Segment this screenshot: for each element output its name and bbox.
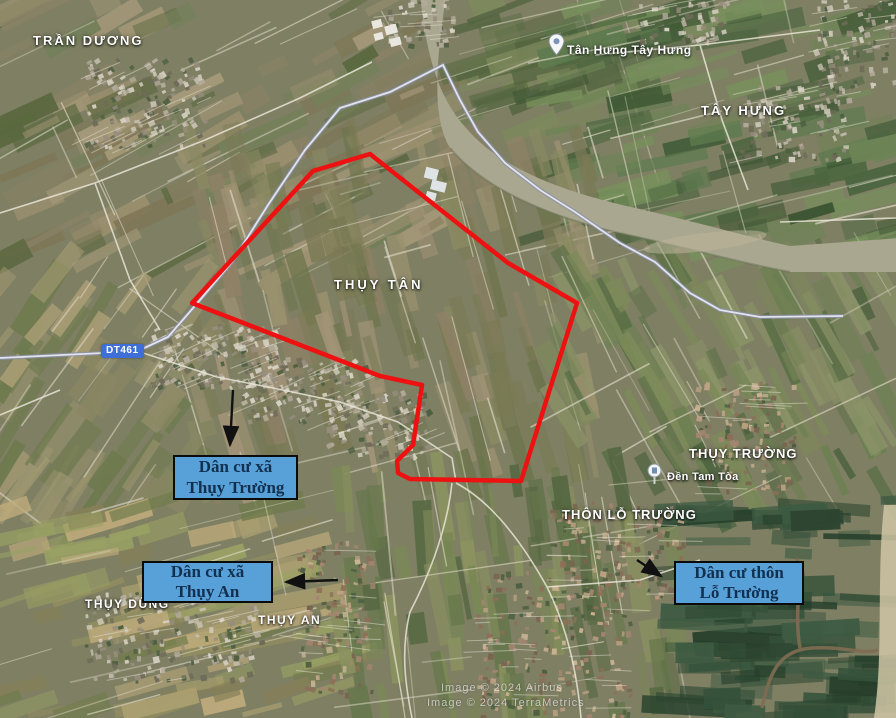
place-pin-icon[interactable] bbox=[548, 33, 565, 56]
map-label-tay-hung: TÂY HƯNG bbox=[701, 103, 786, 118]
road-badge-dt461: DT461 bbox=[101, 344, 144, 358]
map-label-thuy-truong: THỤY TRƯỜNG bbox=[689, 446, 797, 461]
map-label-thuy-tan: THỤY TÂN bbox=[334, 277, 423, 292]
map-label-thuy-an: THỤY AN bbox=[258, 613, 321, 627]
imagery-attribution: Image © 2024 TerraMetrics bbox=[427, 697, 585, 709]
annotation-line: Thụy An bbox=[144, 582, 271, 602]
map-label-tan-hung-tay-hung: Tân Hưng Tây Hưng bbox=[567, 43, 692, 57]
satellite-map-view[interactable]: TRẦN DƯƠNG Tân Hưng Tây Hưng TÂY HƯNG TH… bbox=[0, 0, 896, 718]
temple-pin-icon[interactable] bbox=[647, 463, 662, 485]
imagery-attribution: Image © 2024 Airbus bbox=[441, 682, 563, 694]
annotation-line: Thụy Trường bbox=[175, 478, 296, 498]
annotation-line: Lỗ Trường bbox=[676, 583, 802, 603]
annotation-line: Dân cư xã bbox=[175, 457, 296, 477]
map-label-den-tam-toa: Đền Tam Tòa bbox=[667, 471, 739, 483]
annotation-box-thuy-an: Dân cư xã Thụy An bbox=[142, 561, 273, 603]
map-label-tran-duong: TRẦN DƯƠNG bbox=[33, 33, 143, 48]
annotation-box-thuy-truong: Dân cư xã Thụy Trường bbox=[173, 455, 298, 500]
map-label-thon-lo-truong: THÔN LỖ TRƯỜNG bbox=[562, 507, 697, 522]
annotation-line: Dân cư xã bbox=[144, 562, 271, 582]
annotation-box-lo-truong: Dân cư thôn Lỗ Trường bbox=[674, 561, 804, 605]
annotation-line: Dân cư thôn bbox=[676, 563, 802, 583]
